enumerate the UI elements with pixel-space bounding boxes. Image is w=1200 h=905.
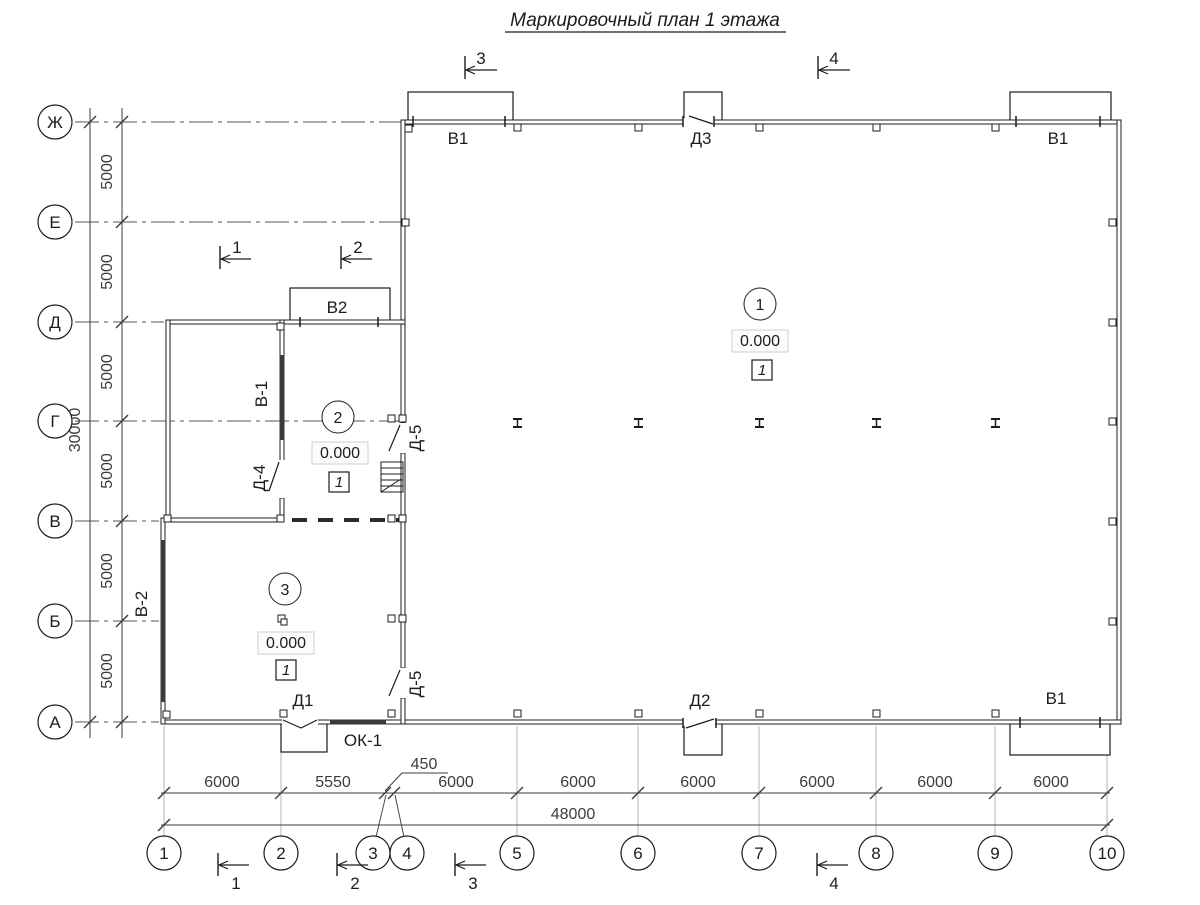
axis-letter: В [49, 512, 60, 531]
dim-label-5000: 5000 [99, 653, 116, 689]
dim-label-6000: 6000 [1033, 774, 1069, 791]
i-beam-column [755, 419, 764, 427]
dim-label-6000: 6000 [799, 774, 835, 791]
dim-label-5000: 5000 [99, 553, 116, 589]
louver-v1-top-left-bump [408, 92, 513, 122]
dim-label-6000: 6000 [204, 774, 240, 791]
marker-square [399, 615, 406, 622]
axis-3-4-connectors [376, 795, 404, 837]
marker-square [1109, 219, 1116, 226]
dim-label-48000: 48000 [551, 806, 596, 823]
steel-columns [513, 419, 1000, 427]
wall-axis-v [161, 518, 284, 522]
axis-letter: Г [50, 412, 59, 431]
label-v1-top-left: В1 [448, 129, 469, 148]
i-beam-column [634, 419, 643, 427]
marker-square [514, 124, 521, 131]
wall-hall-left-lower [401, 698, 405, 724]
dim-label-6000: 6000 [917, 774, 953, 791]
section-mark-middle-1: 1 [220, 238, 251, 269]
axis-number: 5 [512, 844, 521, 863]
letter-axis-bubbles: Ж Е Д Г В Б А [38, 105, 72, 739]
louver-v1-bottom-bump [1010, 722, 1110, 755]
door-d3-bump [684, 92, 722, 122]
label-d4: Д-4 [250, 465, 269, 492]
section-mark-bottom-4: 4 [817, 853, 848, 893]
room-marker-3: 3 0.000 1 [258, 573, 314, 680]
marker-square [405, 125, 412, 132]
i-beam-column [513, 419, 522, 427]
dim-label-6000: 6000 [680, 774, 716, 791]
section-mark-bottom-3: 3 [455, 853, 486, 893]
finish-type-value: 1 [335, 474, 343, 491]
label-d3: Д3 [691, 129, 712, 148]
marker-square [164, 515, 171, 522]
guide-line-axis4 [395, 795, 404, 837]
wall-hall-left-upper [401, 120, 405, 423]
door-gap-d2 [683, 718, 715, 726]
marker-square [399, 515, 406, 522]
dim-label-5550: 5550 [315, 774, 351, 791]
marker-square [402, 219, 409, 226]
marker-square [388, 415, 395, 422]
axis-number: 9 [990, 844, 999, 863]
finish-type-value: 1 [758, 362, 766, 379]
wall-right [1117, 120, 1121, 724]
label-v2: В2 [327, 298, 348, 317]
marker-square [388, 710, 395, 717]
marker-square [1109, 418, 1116, 425]
label-d2: Д2 [690, 691, 711, 710]
marker-square [635, 710, 642, 717]
dim-label-5000: 5000 [99, 154, 116, 190]
section-label: 3 [476, 49, 485, 68]
door-leaf-d5-lower [389, 670, 400, 696]
marker-square [1109, 518, 1116, 525]
marker-square [399, 415, 406, 422]
bottom-dimension-lines [158, 773, 1113, 831]
label-v2-window: В-2 [132, 591, 151, 617]
marker-square [873, 710, 880, 717]
axis-number: 6 [633, 844, 642, 863]
label-d5-lower: Д-5 [406, 671, 425, 698]
axis-number: 7 [754, 844, 763, 863]
label-ok1: ОК-1 [344, 731, 382, 750]
label-d1: Д1 [293, 691, 314, 710]
door-leaf-d4 [269, 462, 279, 491]
dim-label-450: 450 [411, 756, 438, 773]
label-d5-upper: Д-5 [406, 425, 425, 452]
marker-square [514, 710, 521, 717]
room-number: 3 [281, 582, 290, 599]
axis-number: 4 [402, 844, 411, 863]
dim-label-5000: 5000 [99, 254, 116, 290]
wall-annex-top [166, 320, 405, 324]
section-label: 1 [231, 874, 240, 893]
room-number: 2 [334, 410, 343, 427]
wall-annex-left [166, 320, 170, 522]
dim-label-5000: 5000 [99, 354, 116, 390]
section-mark-top-3: 3 [465, 49, 497, 79]
section-mark-bottom-1: 1 [218, 853, 249, 893]
room-marker-1: 1 0.000 1 [732, 288, 788, 380]
section-mark-top-4: 4 [818, 49, 850, 79]
marker-square [277, 323, 284, 330]
section-label: 1 [232, 238, 241, 257]
marker-square [756, 710, 763, 717]
marker-square [992, 710, 999, 717]
section-label: 4 [829, 49, 838, 68]
axis-letter: А [49, 713, 61, 732]
stairs [381, 462, 403, 492]
marker-square [280, 710, 287, 717]
room-number: 1 [756, 297, 765, 314]
i-beam-column [991, 419, 1000, 427]
marker-square [277, 515, 284, 522]
marker-square [756, 124, 763, 131]
section-marks: 3 4 1 2 1 [218, 49, 850, 893]
section-mark-middle-2: 2 [341, 238, 372, 269]
number-axis-bubbles: 1 2 3 4 5 6 7 8 9 10 [147, 836, 1124, 870]
floor-plan-drawing: Маркировочный план 1 этажа [0, 0, 1200, 900]
left-dimension-lines [84, 108, 128, 738]
axis-letter: Е [49, 213, 60, 232]
axis-letter: Ж [47, 113, 63, 132]
section-label: 2 [350, 874, 359, 893]
door-gap-d4 [278, 460, 286, 498]
marker-square-room3 [281, 619, 287, 625]
axis-letter: Д [49, 313, 61, 332]
marker-square [388, 515, 395, 522]
axis-letter: Б [49, 612, 60, 631]
label-v1-bottom: В1 [1046, 689, 1067, 708]
section-label: 4 [829, 874, 838, 893]
axis-number: 10 [1098, 844, 1117, 863]
section-label: 3 [468, 874, 477, 893]
floor-plan-sheet: Маркировочный план 1 этажа [0, 0, 1200, 900]
label-v1-top-right: В1 [1048, 129, 1069, 148]
marker-square [873, 124, 880, 131]
marker-square [635, 124, 642, 131]
louver-v1-top-right-bump [1010, 92, 1111, 122]
section-label: 2 [353, 238, 362, 257]
marker-square [388, 615, 395, 622]
door-leaf-d5-upper [389, 425, 400, 451]
axis-number: 8 [871, 844, 880, 863]
label-v1-window: В-1 [252, 381, 271, 407]
marker-square [1109, 319, 1116, 326]
marker-square [1109, 618, 1116, 625]
page-title: Маркировочный план 1 этажа [510, 10, 780, 31]
elevation-value: 0.000 [740, 333, 780, 350]
axis-number: 3 [368, 844, 377, 863]
stairs-outline [381, 462, 403, 492]
dim-label-5000: 5000 [99, 453, 116, 489]
marker-square [992, 124, 999, 131]
dim-label-6000: 6000 [560, 774, 596, 791]
i-beam-column [872, 419, 881, 427]
axis-number: 2 [276, 844, 285, 863]
bottom-dimension-labels: 6000 5550 450 6000 6000 6000 6000 6000 6… [204, 756, 1069, 823]
wall-top [403, 120, 1121, 124]
finish-type-value: 1 [282, 662, 290, 679]
elevation-value: 0.000 [320, 445, 360, 462]
jamb-ticks [300, 116, 1100, 728]
elevation-value: 0.000 [266, 635, 306, 652]
guide-line-axis3 [376, 795, 386, 837]
room-marker-2: 2 0.000 1 [312, 401, 368, 492]
dim-label-6000: 6000 [438, 774, 474, 791]
marker-square [163, 711, 170, 718]
axis-number: 1 [159, 844, 168, 863]
